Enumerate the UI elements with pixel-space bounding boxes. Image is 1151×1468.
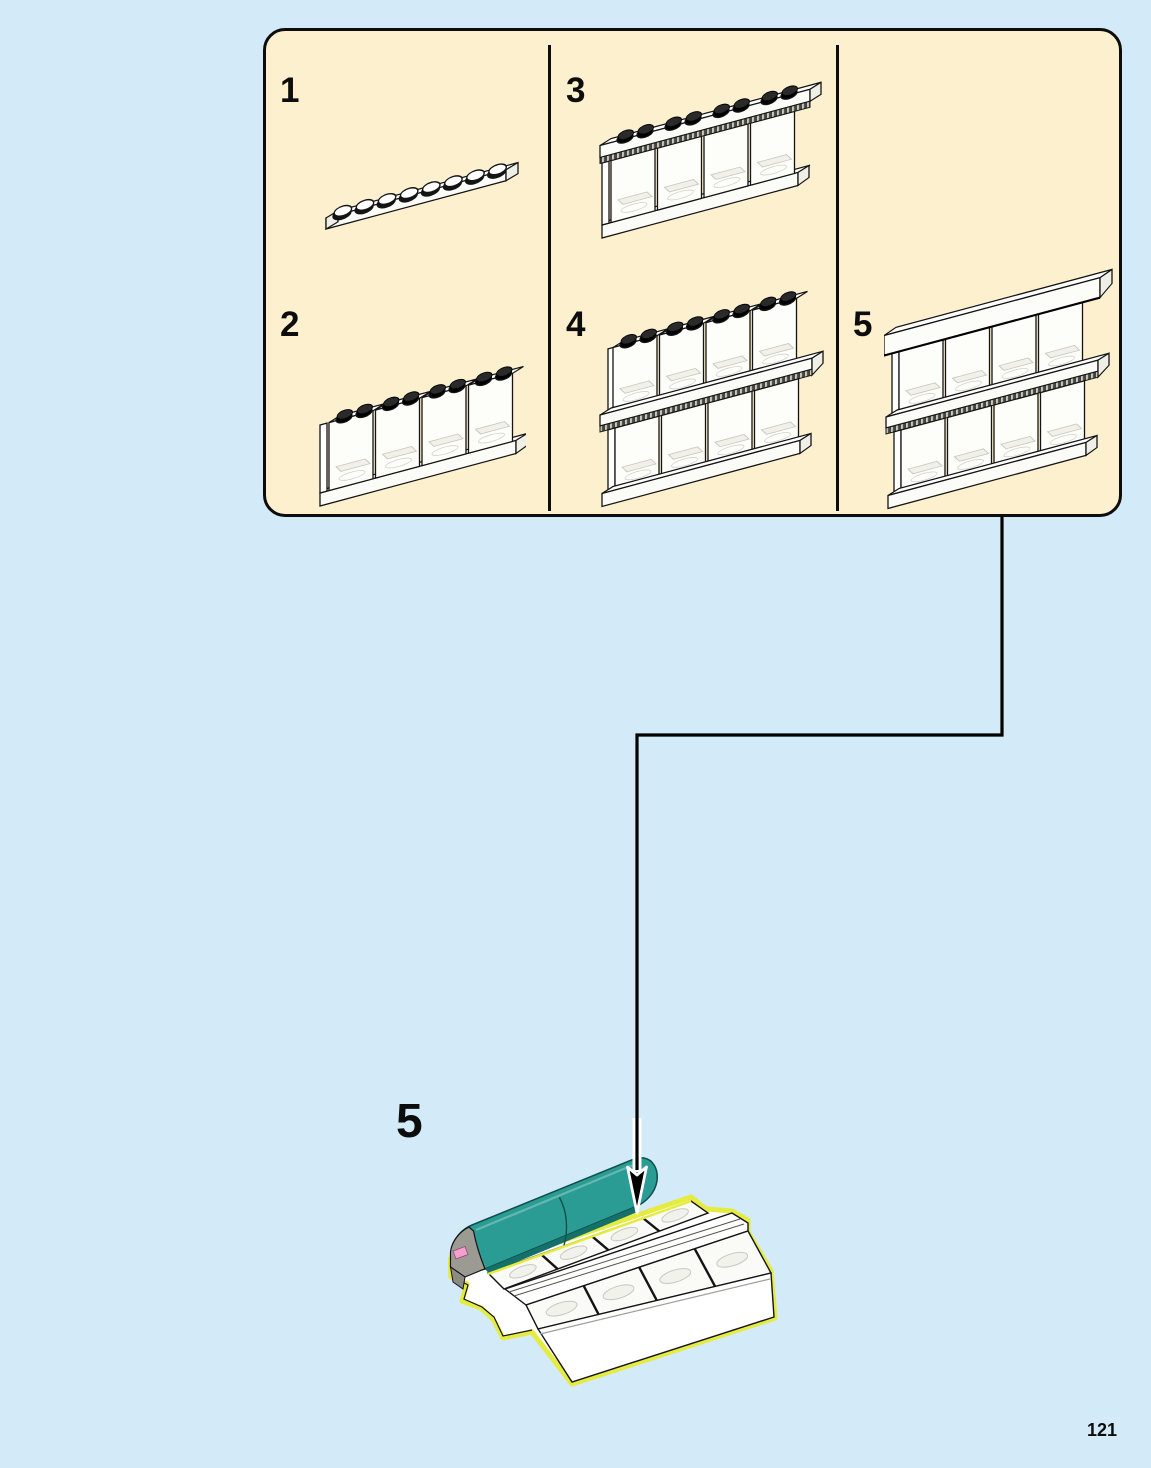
page-number: 121 [1087, 1421, 1117, 1439]
main-step-label: 5 [396, 1098, 423, 1146]
step-5-illustration-rows-with-beam [884, 261, 1116, 511]
step-2-illustration-case-row [314, 339, 526, 511]
step-label-2: 2 [280, 307, 299, 342]
connector-line [637, 517, 1002, 1170]
step-label-5: 5 [853, 307, 872, 342]
step-label-1: 1 [280, 73, 299, 108]
panel-divider-2 [836, 45, 839, 511]
step-4-illustration-stacked-rows [596, 271, 826, 509]
main-assembly-illustration [448, 1153, 788, 1395]
step-label-4: 4 [566, 307, 585, 342]
instruction-page: 1 2 3 4 5 [0, 0, 1151, 1468]
step-3-illustration-case-row-grille [596, 61, 822, 241]
substep-panel: 1 2 3 4 5 [263, 28, 1122, 517]
step-label-3: 3 [566, 73, 585, 108]
panel-divider-1 [548, 45, 551, 511]
step-1-illustration-white-1x8-plate [318, 127, 528, 241]
